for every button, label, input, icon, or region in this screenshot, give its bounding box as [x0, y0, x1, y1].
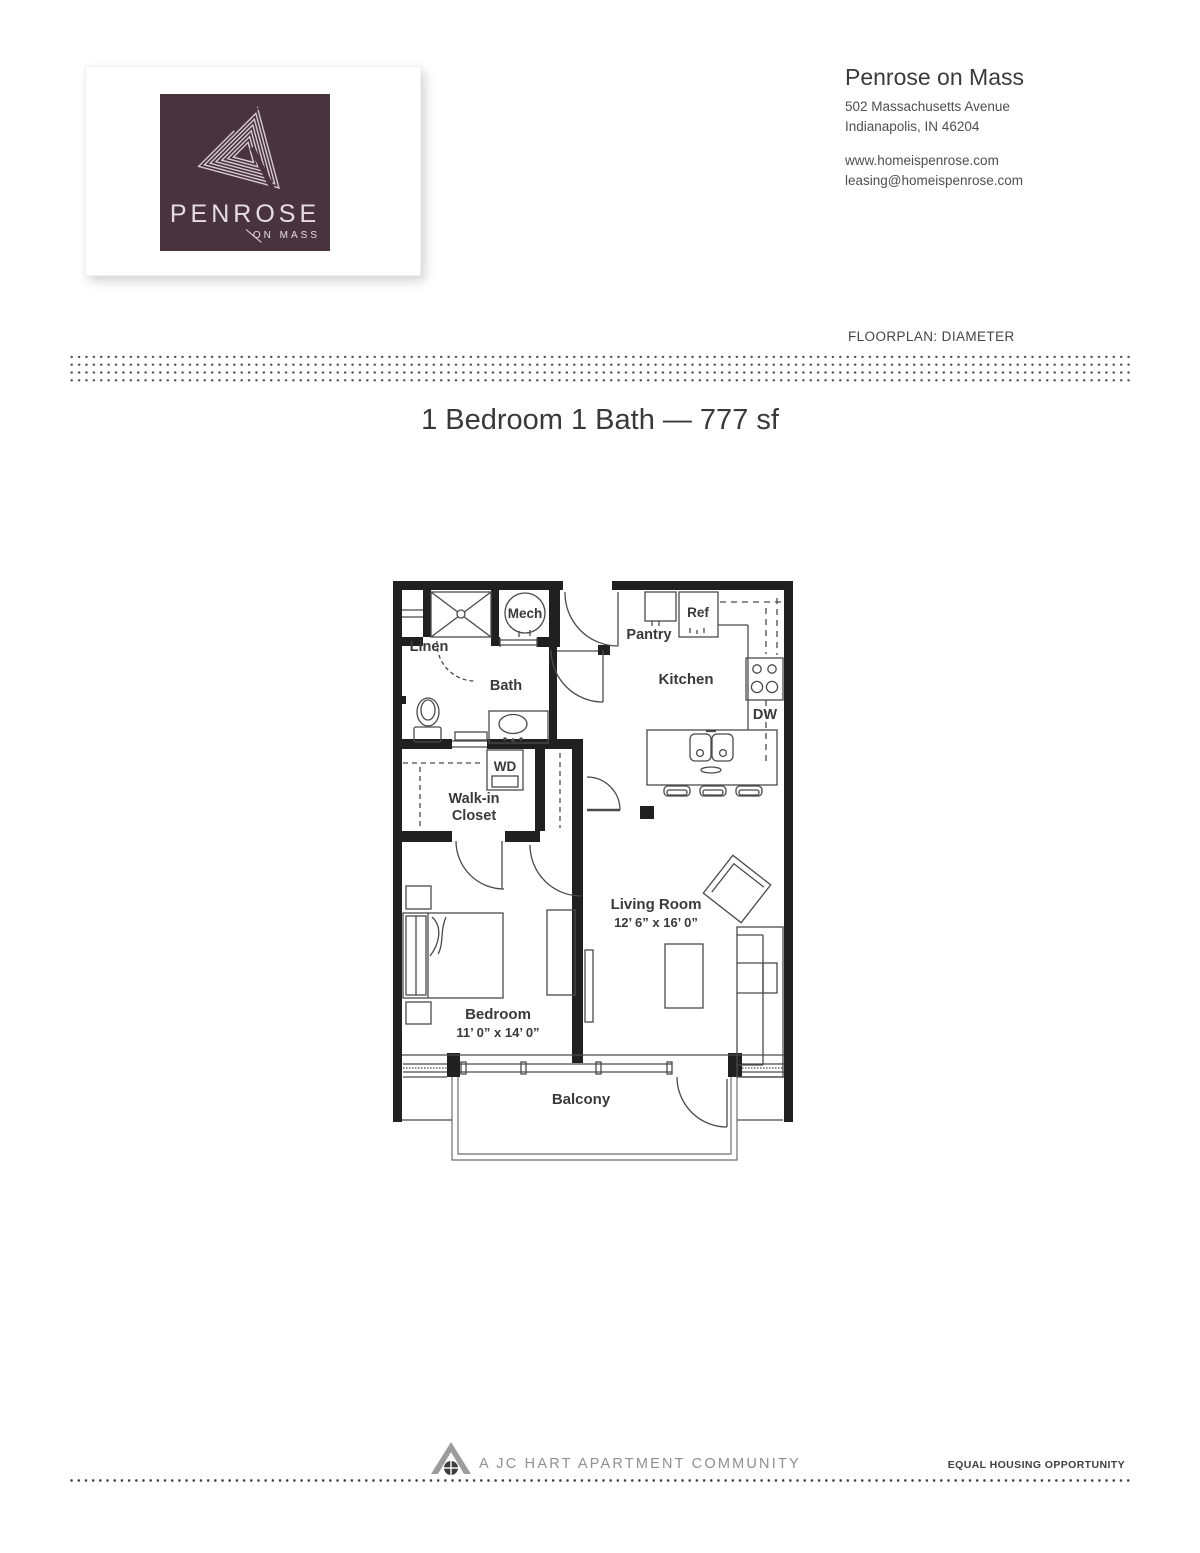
label-kitchen: Kitchen: [658, 671, 713, 688]
armchair: [703, 855, 770, 922]
label-ref: Ref: [687, 605, 709, 620]
nightstand: [406, 886, 431, 909]
label-bedroom: Bedroom: [465, 1006, 531, 1023]
balcony-door-arc: [677, 1077, 727, 1127]
fixtures: [402, 592, 786, 1127]
toilet: [414, 698, 441, 742]
label-pantry: Pantry: [626, 627, 671, 643]
community-tagline: A JC HART APARTMENT COMMUNITY: [479, 1456, 801, 1472]
unit-title: 1 Bedroom 1 Bath — 777 sf: [0, 404, 1200, 437]
dresser: [547, 910, 575, 995]
floor-plan-drawing: Mech Linen Bath Pantry Ref Kitchen DW WD…: [389, 572, 797, 1168]
address-line-2: Indianapolis, IN 46204: [845, 117, 1024, 137]
label-living-dims: 12’ 6” x 16’ 0”: [614, 915, 698, 930]
label-mech: Mech: [508, 606, 543, 621]
bed: [403, 913, 503, 998]
penrose-logo: PENROSE ON MASS: [160, 94, 330, 251]
contact-block: Penrose on Mass 502 Massachusetts Avenue…: [845, 64, 1024, 191]
house-icon: [429, 1438, 473, 1478]
coffee-table: [665, 944, 703, 1008]
label-dw: DW: [753, 707, 777, 723]
nightstand: [406, 1002, 431, 1024]
email-link[interactable]: leasing@homeispenrose.com: [845, 171, 1024, 191]
stove: [746, 658, 783, 700]
closet-door-arc: [456, 841, 504, 889]
hall-door-arc: [587, 777, 620, 810]
floorplan-name-label: FLOORPLAN: DIAMETER: [848, 329, 1015, 344]
equal-housing-label: EQUAL HOUSING OPPORTUNITY: [948, 1459, 1125, 1471]
bath-door-arc: [551, 650, 603, 702]
label-linen: Linen: [410, 639, 449, 655]
entry-door-arc: [565, 592, 618, 646]
label-bath: Bath: [490, 678, 522, 694]
label-bedroom-dims: 11’ 0” x 14’ 0”: [456, 1025, 539, 1040]
label-balcony: Balcony: [552, 1091, 611, 1108]
bar-stools: [664, 786, 762, 796]
website-link[interactable]: www.homeispenrose.com: [845, 151, 1024, 171]
balcony-railing: [452, 1077, 737, 1160]
label-wd: WD: [494, 759, 517, 774]
dotted-separator-bottom: [68, 1477, 1132, 1484]
logo-sub-text: ON MASS: [160, 230, 320, 241]
dotted-separator-top: [68, 353, 1132, 384]
vanity-sink: [489, 711, 548, 743]
label-living-room: Living Room: [611, 896, 702, 913]
room-labels: Mech Linen Bath Pantry Ref Kitchen DW WD…: [410, 605, 778, 1108]
pantry-cabinet: [645, 592, 676, 621]
label-walkin-1: Walk-in: [448, 791, 499, 807]
property-name: Penrose on Mass: [845, 64, 1024, 91]
label-walkin-2: Closet: [452, 808, 496, 824]
spacer: [845, 137, 1024, 151]
tv-console: [585, 950, 593, 1022]
logo-card: PENROSE ON MASS: [85, 66, 421, 276]
logo-brand-text: PENROSE: [160, 200, 330, 229]
address-line-1: 502 Massachusetts Avenue: [845, 97, 1024, 117]
kitchen-sink: [690, 731, 733, 773]
walls: [393, 581, 793, 1122]
